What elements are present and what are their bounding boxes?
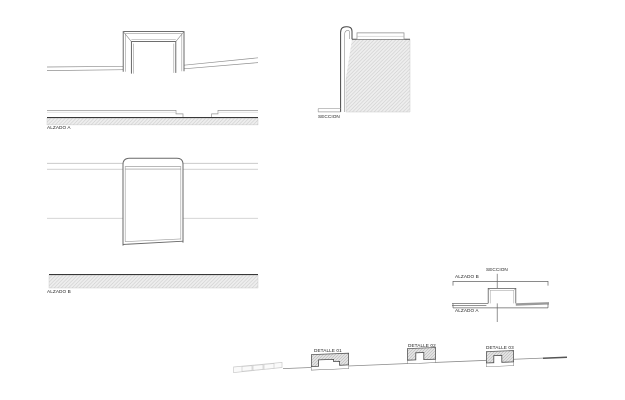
detail-02-marker (407, 348, 435, 364)
wall-top-lines-left (47, 66, 125, 70)
drawing-sheet: ALZADO A SECCION ALZADO B ALZADO B SECCI… (0, 0, 625, 400)
detalle-02-label: DETALLE 02 (408, 344, 436, 349)
ground-hatch-band (47, 118, 258, 125)
wall-top-lines-right (184, 58, 258, 69)
faint-plan-box-1 (242, 366, 252, 372)
key-profile-baseline-right (516, 302, 549, 306)
linework-canvas (0, 0, 625, 400)
alzado-a-label: ALZADO A (47, 126, 71, 131)
band-top-line-with-notch (47, 110, 258, 117)
faint-plan-box-2 (253, 365, 263, 371)
detalle-03-label: DETALLE 03 (486, 346, 514, 351)
site-long-line-end (543, 357, 567, 358)
site-strip (234, 348, 567, 373)
key-alzado-b-label: ALZADO B (455, 275, 479, 280)
key-profile-baseline-left (452, 303, 488, 305)
key-seccion-label: SECCION (486, 268, 508, 273)
faint-plan-box-3 (264, 364, 274, 370)
alzado-a-drawing (47, 32, 258, 125)
door-leaf-outline (123, 158, 183, 245)
faint-plan-structure (234, 362, 282, 372)
alzado-b-label: ALZADO B (47, 290, 71, 295)
key-bracket-top (453, 281, 548, 285)
alzado-b-drawing (47, 158, 258, 288)
seccion-drawing (318, 27, 410, 112)
ground-hatch-band-b (49, 275, 258, 288)
key-diagram (452, 274, 549, 322)
key-alzado-a-label: ALZADO A (455, 309, 479, 314)
portal-opening (131, 42, 175, 74)
section-hatched-mass (346, 39, 410, 112)
detalle-01-label: DETALLE 01 (314, 349, 342, 354)
detail-03-marker (486, 351, 513, 367)
detail-01-marker (311, 353, 348, 370)
seccion-label: SECCION (318, 115, 340, 120)
base-slab-lines (318, 109, 341, 112)
